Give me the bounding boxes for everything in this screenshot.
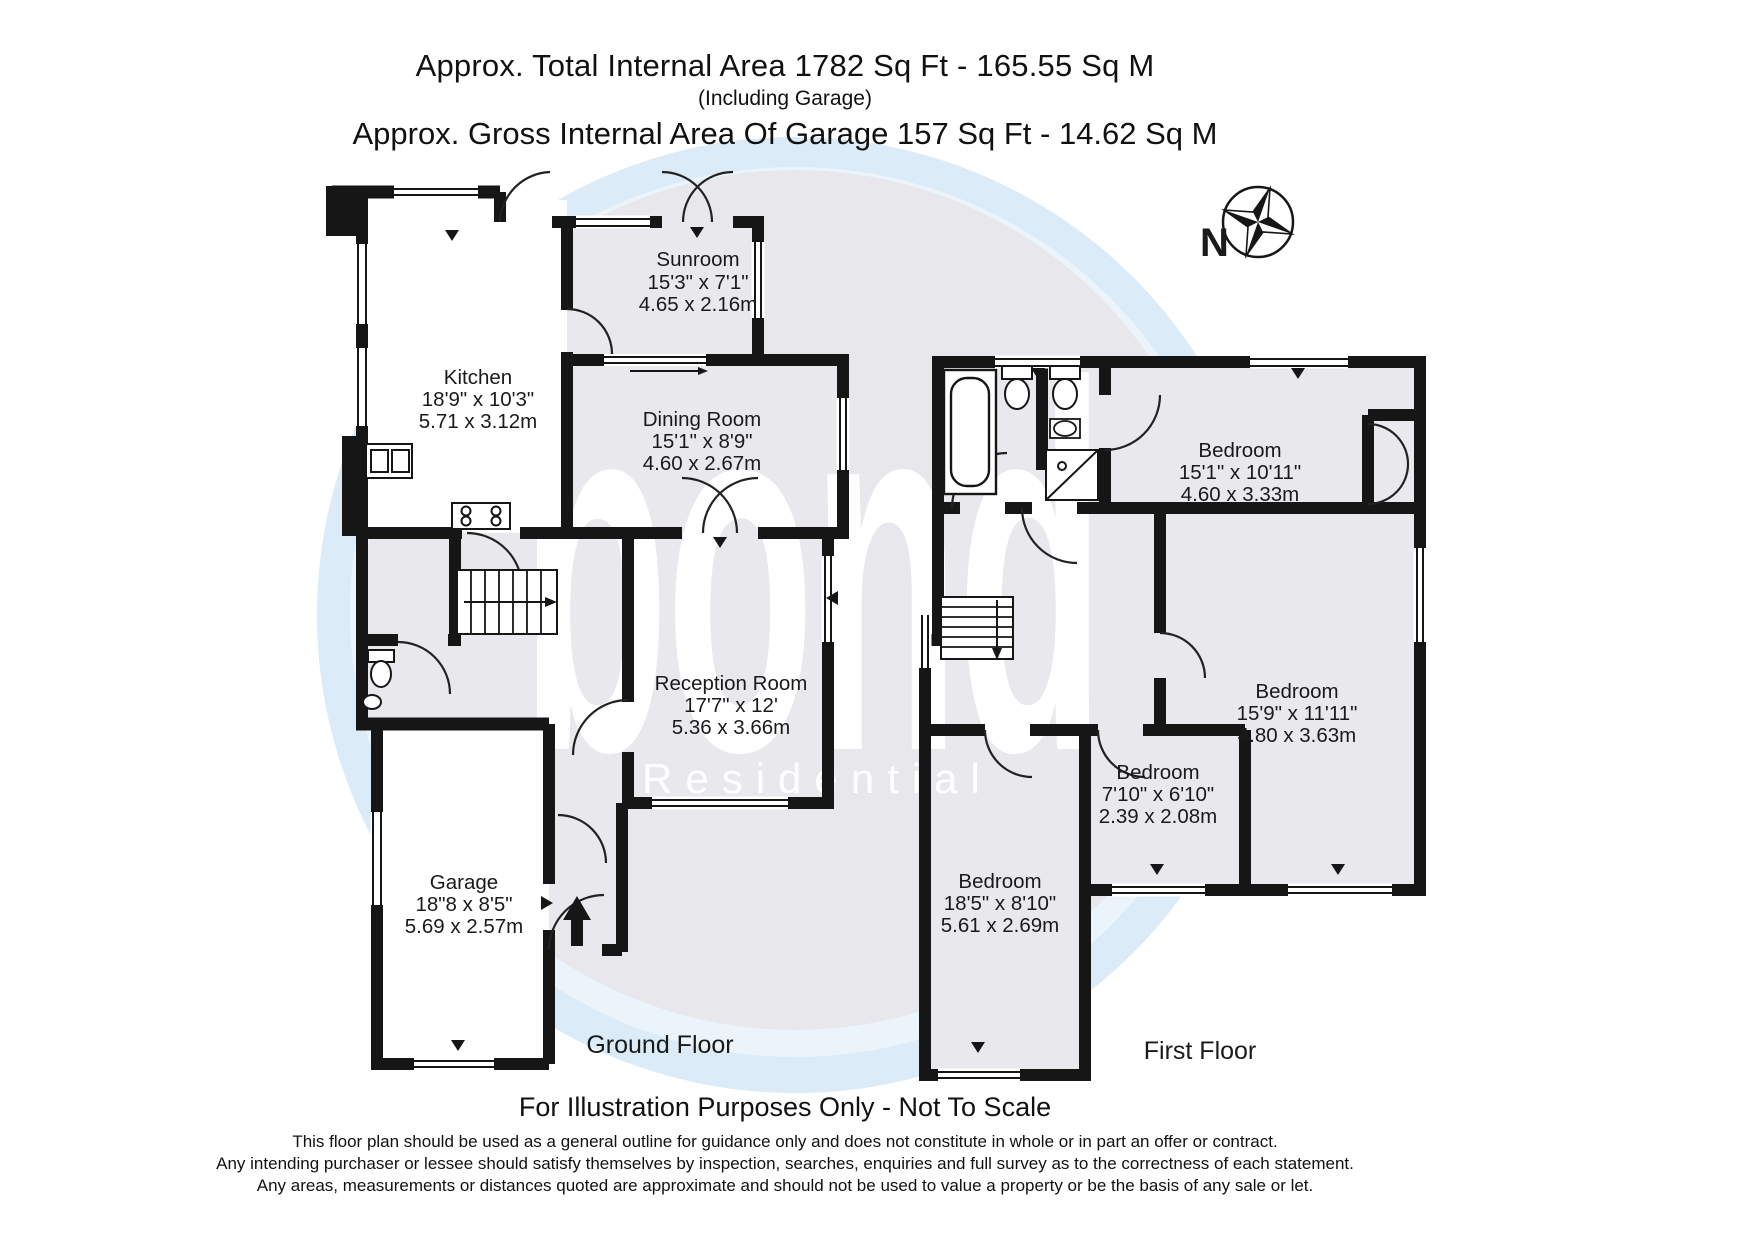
illustration-notice: For Illustration Purposes Only - Not To … xyxy=(0,1092,1570,1123)
reception-room-dims-metric: 5.36 x 3.66m xyxy=(672,716,791,739)
hall-reception-door xyxy=(573,700,628,755)
dining-room-label: Dining Room xyxy=(643,408,762,431)
wc-toilet-icon xyxy=(368,650,394,687)
ground-floor-title: Ground Floor xyxy=(586,1031,733,1059)
sunroom-label: Sunroom xyxy=(656,248,739,271)
reception-bottom-window xyxy=(652,797,788,810)
toilet-icon-2 xyxy=(1050,366,1080,409)
bedroom-right-window xyxy=(1414,548,1427,642)
kitchen-top-window xyxy=(394,186,478,199)
including-garage-note: (Including Garage) xyxy=(0,87,1570,111)
back-door-arc xyxy=(500,172,550,221)
marker-kitchen-window xyxy=(445,230,459,241)
sunroom-top-window xyxy=(576,216,650,229)
bathtub-icon xyxy=(944,370,996,494)
footer-area: For Illustration Purposes Only - Not To … xyxy=(0,1092,1570,1197)
garage-left-window xyxy=(371,812,384,905)
sink-icon xyxy=(1050,419,1080,438)
bedroom-top-dims-metric: 4.60 x 3.33m xyxy=(1181,483,1300,506)
dining-right-window xyxy=(837,398,850,470)
bedroom-top-window xyxy=(1250,356,1348,369)
marker-bedroom-bottom-window xyxy=(971,1042,985,1053)
floor-plan-page: bond Residential xyxy=(0,0,1753,1240)
dining-room-dims-metric: 4.60 x 2.67m xyxy=(643,452,762,475)
header-area: Approx. Total Internal Area 1782 Sq Ft -… xyxy=(0,48,1570,152)
garage-dims-metric: 5.69 x 2.57m xyxy=(405,915,524,938)
garage-dims-imperial: 18"8 x 8'5" xyxy=(415,893,512,916)
marker-bedroom-small-window xyxy=(1150,864,1164,875)
marker-dining-doors xyxy=(713,537,727,548)
sunroom-dims-metric: 4.65 x 2.16m xyxy=(639,293,758,316)
kitchen-hob-icon xyxy=(452,503,510,529)
wc-basin-icon xyxy=(363,695,381,709)
kitchen-left-window-1 xyxy=(356,244,369,324)
bedroom-bottom-door xyxy=(985,730,1032,777)
garage-bottom-window xyxy=(414,1058,494,1071)
bedroom-right-bottom-window xyxy=(1288,884,1392,897)
disclaimer-text: This floor plan should be used as a gene… xyxy=(0,1131,1570,1197)
bedroom-right-dims-metric: 4.80 x 3.63m xyxy=(1238,724,1357,747)
first-floor-stairs xyxy=(941,597,1013,660)
bedroom-bottom-label: Bedroom xyxy=(958,870,1041,893)
disclaimer-line-2: Any intending purchaser or lessee should… xyxy=(0,1153,1570,1175)
bedroom-small-label: Bedroom xyxy=(1116,761,1199,784)
landing-left-window xyxy=(919,615,932,668)
toilet-icon xyxy=(1002,366,1032,409)
kitchen-left-window-2 xyxy=(356,348,369,426)
bedroom-bottom-dims-imperial: 18'5" x 8'10" xyxy=(944,892,1056,915)
bedroom-top-door xyxy=(1105,395,1160,450)
garage-area-title: Approx. Gross Internal Area Of Garage 15… xyxy=(0,116,1570,152)
bedroom-small-bottom-window xyxy=(1112,884,1205,897)
dining-room-dims-imperial: 15'1" x 8'9" xyxy=(651,430,752,453)
bedroom-top-label: Bedroom xyxy=(1198,439,1281,462)
kitchen-dining-door xyxy=(567,309,612,354)
porch-inner-door xyxy=(558,815,606,863)
marker-bedroom-top-window xyxy=(1291,368,1305,379)
garage-label: Garage xyxy=(430,871,498,894)
landing-door xyxy=(1022,508,1077,563)
compass-rose: N xyxy=(1200,187,1293,265)
marker-garage-door xyxy=(541,896,553,910)
marker-garage-window xyxy=(451,1040,465,1051)
ground-floor-stairs xyxy=(457,570,557,634)
bathroom-fixtures xyxy=(944,366,1098,500)
disclaimer-line-1: This floor plan should be used as a gene… xyxy=(0,1131,1570,1153)
bedroom-right-label: Bedroom xyxy=(1255,680,1338,703)
first-floor-title: First Floor xyxy=(1144,1037,1257,1065)
disclaimer-line-3: Any areas, measurements or distances quo… xyxy=(0,1175,1570,1197)
kitchen-sink-icon xyxy=(366,444,412,478)
bedroom-small-dims-imperial: 7'10" x 6'10" xyxy=(1102,783,1214,806)
marker-bedroom-right-window xyxy=(1331,864,1345,875)
kitchen-dims-imperial: 18'9" x 10'3" xyxy=(422,388,534,411)
bedroom-right-door xyxy=(1160,633,1205,678)
total-area-title: Approx. Total Internal Area 1782 Sq Ft -… xyxy=(0,48,1570,84)
compass-north-label: N xyxy=(1200,221,1229,265)
reception-room-dims-imperial: 17'7" x 12' xyxy=(684,694,778,717)
bedroom-top-dims-imperial: 15'1" x 10'11" xyxy=(1179,461,1301,484)
bedroom-bottom-dims-metric: 5.61 x 2.69m xyxy=(941,914,1060,937)
shower-icon xyxy=(1046,450,1098,500)
floor-plan-line-layer: N Sunroom 15'3" x 7'1" 4.65 x 2.16m Kitc… xyxy=(0,0,1753,1240)
wc-door xyxy=(398,642,450,694)
kitchen-dims-metric: 5.71 x 3.12m xyxy=(419,410,538,433)
sunroom-dims-imperial: 15'3" x 7'1" xyxy=(647,271,748,294)
entrance-arrow-icon xyxy=(563,896,591,946)
compass-star-dark-facets xyxy=(1224,188,1292,256)
sunroom-dining-slider-window xyxy=(604,354,708,375)
bedroom-small-dims-metric: 2.39 x 2.08m xyxy=(1099,805,1218,828)
marker-sunroom-doors xyxy=(690,227,704,238)
reception-room-label: Reception Room xyxy=(655,672,808,695)
bedroom-bottom-window xyxy=(938,1069,1020,1082)
kitchen-label: Kitchen xyxy=(444,366,512,389)
bedroom-right-dims-imperial: 15'9" x 11'11" xyxy=(1237,702,1358,725)
